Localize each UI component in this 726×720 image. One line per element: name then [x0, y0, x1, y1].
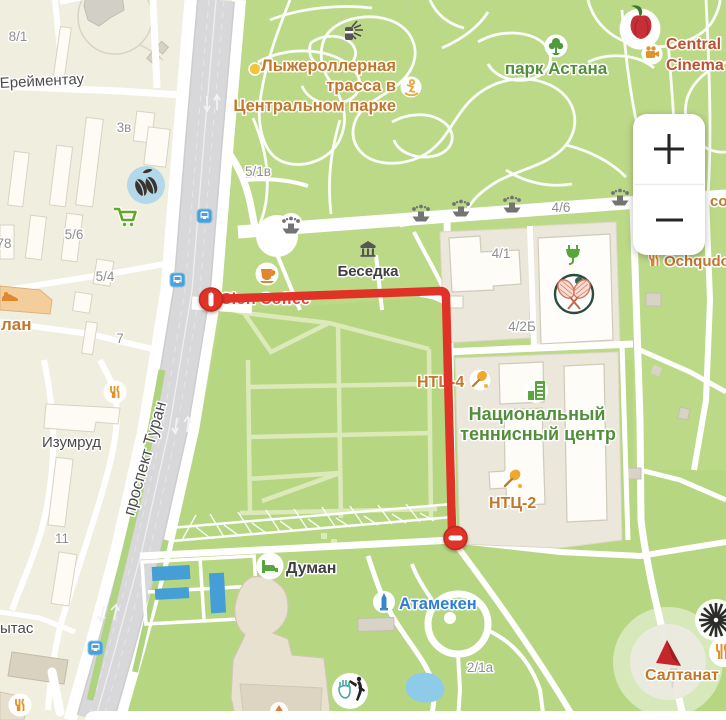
svg-text:4/1: 4/1: [492, 246, 511, 261]
svg-text:5/6: 5/6: [65, 227, 84, 242]
svg-text:4/6: 4/6: [552, 200, 571, 215]
svg-text:3в: 3в: [117, 120, 132, 135]
svg-text:трасса в: трасса в: [326, 77, 396, 95]
svg-text:Салтанат: Салтанат: [645, 667, 719, 684]
svg-text:Национальный: Национальный: [469, 404, 606, 424]
svg-text:Беседка: Беседка: [338, 263, 400, 280]
svg-text:Думан: Думан: [286, 560, 336, 577]
svg-text:cof: cof: [710, 193, 726, 210]
svg-text:парк Астана: парк Астана: [505, 59, 608, 78]
svg-text:НТЦ-4: НТЦ-4: [417, 374, 464, 391]
svg-text:8/1: 8/1: [9, 29, 28, 44]
svg-text:2/1а: 2/1а: [467, 660, 494, 675]
svg-text:4/2Б: 4/2Б: [508, 319, 536, 334]
svg-text:Изумруд: Изумруд: [42, 434, 101, 451]
svg-text:5/4: 5/4: [96, 269, 115, 284]
svg-text:Лыжероллерная: Лыжероллерная: [261, 57, 396, 75]
svg-text:11: 11: [55, 531, 69, 546]
svg-text:Cinema: Cinema: [666, 57, 724, 74]
svg-text:ытас: ытас: [0, 620, 34, 637]
svg-text:Central: Central: [666, 36, 721, 53]
svg-text:7: 7: [116, 331, 124, 346]
svg-text:Центральном парке: Центральном парке: [233, 97, 396, 115]
svg-text:78: 78: [0, 236, 12, 251]
svg-text:лан: лан: [1, 315, 32, 334]
svg-text:теннисный центр: теннисный центр: [460, 424, 616, 444]
svg-text:Ochqudo: Ochqudo: [664, 253, 726, 270]
svg-text:5/1в: 5/1в: [245, 164, 271, 179]
svg-text:Атамекен: Атамекен: [399, 595, 477, 613]
svg-text:НТЦ-2: НТЦ-2: [489, 495, 536, 512]
